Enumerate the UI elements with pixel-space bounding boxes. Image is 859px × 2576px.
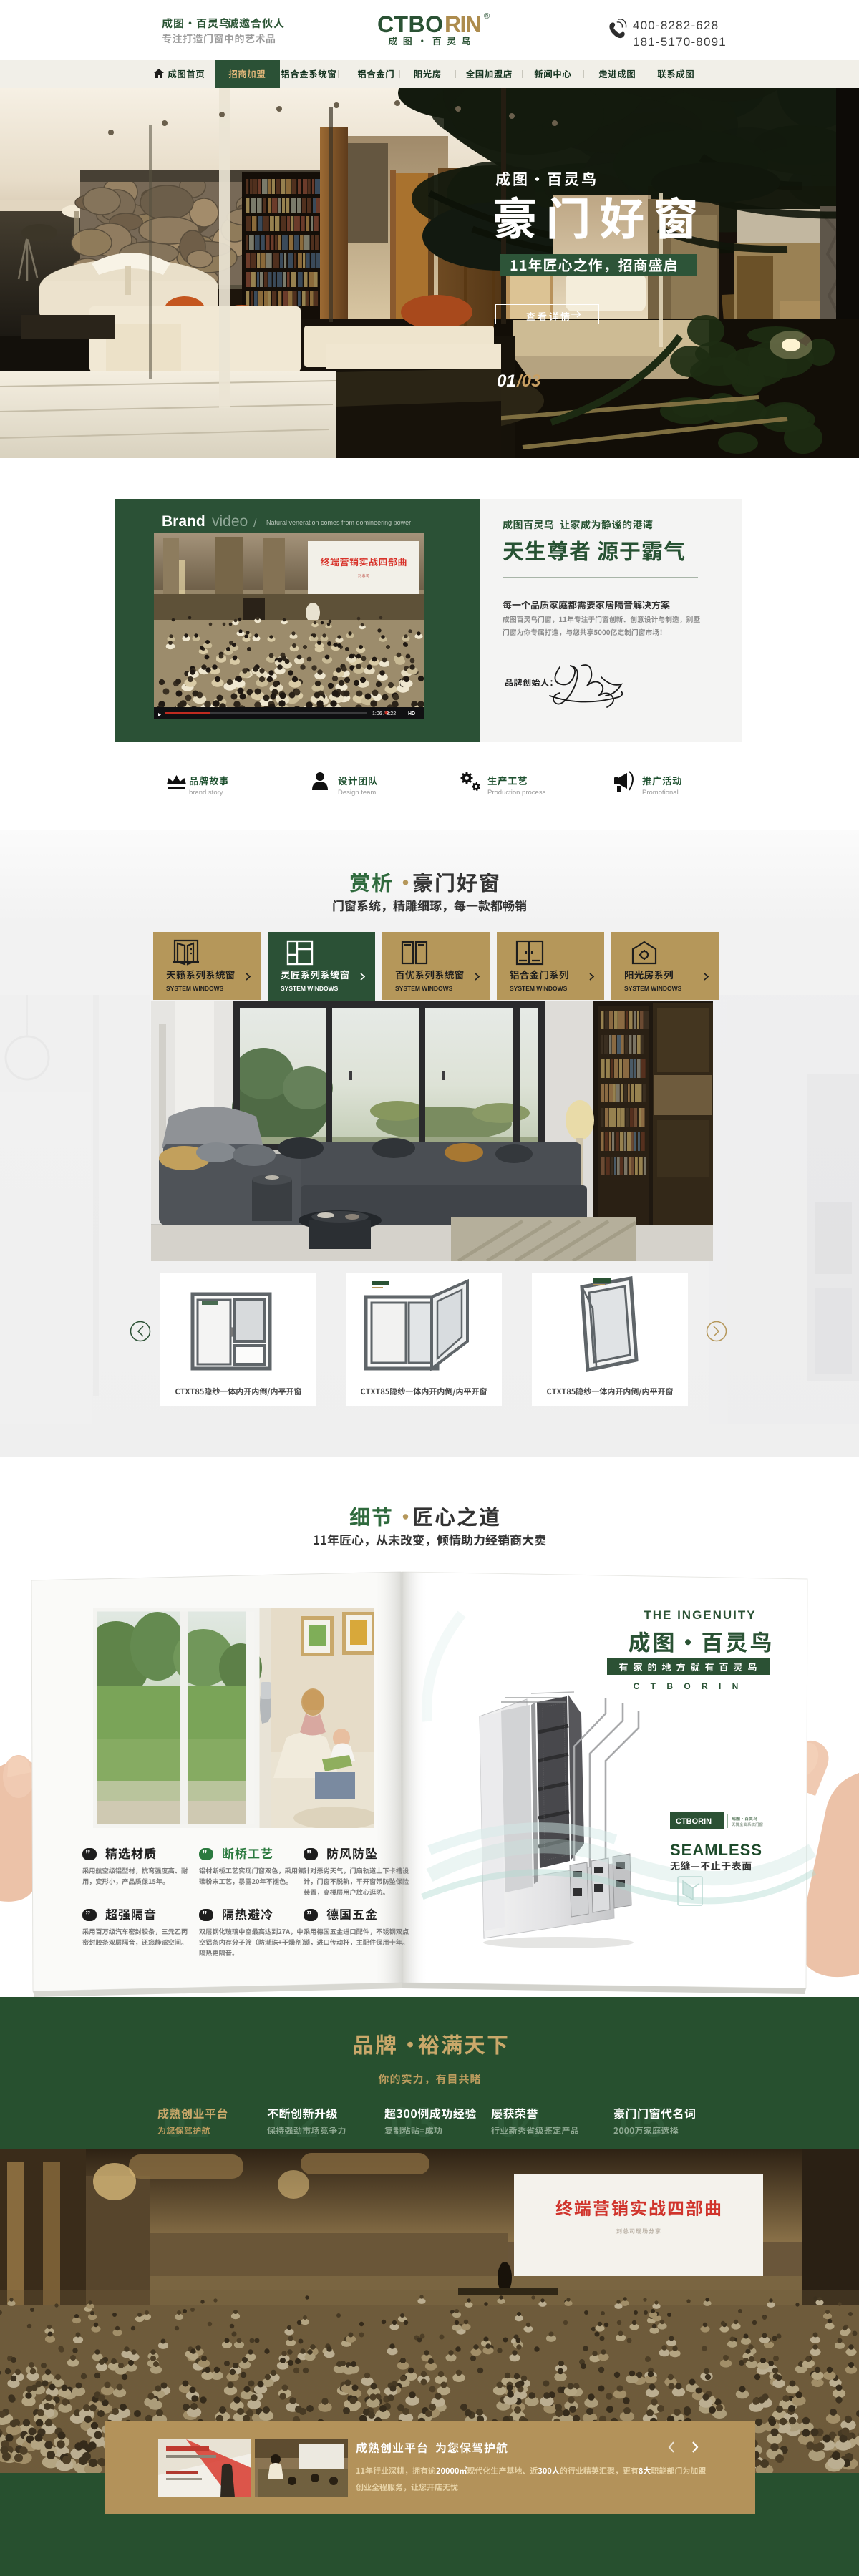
svg-text:video: video bbox=[212, 513, 248, 530]
svg-text:01: 01 bbox=[163, 2099, 210, 2146]
svg-text:Promotional: Promotional bbox=[642, 789, 679, 797]
svg-text:CTBO: CTBO bbox=[377, 11, 443, 37]
svg-text:®: ® bbox=[484, 12, 490, 21]
svg-text:CTBORIN: CTBORIN bbox=[676, 1817, 712, 1826]
svg-text:”: ” bbox=[202, 1909, 208, 1921]
svg-text:181-5170-8091: 181-5170-8091 bbox=[633, 35, 727, 49]
svg-text:SYSTEM WINDOWS: SYSTEM WINDOWS bbox=[281, 985, 339, 992]
svg-text:”: ” bbox=[202, 1848, 208, 1860]
svg-text:”: ” bbox=[306, 1909, 312, 1921]
svg-text:brand story: brand story bbox=[189, 789, 223, 797]
svg-text:C T B O R I N: C T B O R I N bbox=[634, 1681, 743, 1691]
svg-text:02: 02 bbox=[273, 2099, 319, 2146]
svg-text:400-8282-628: 400-8282-628 bbox=[633, 19, 719, 32]
svg-text:SYSTEM WINDOWS: SYSTEM WINDOWS bbox=[510, 985, 568, 992]
svg-text:”: ” bbox=[306, 1848, 312, 1860]
svg-text:Natural veneration comes from: Natural veneration comes from domineerin… bbox=[266, 519, 411, 526]
svg-text:03: 03 bbox=[390, 2099, 437, 2146]
svg-text:05: 05 bbox=[619, 2099, 666, 2146]
svg-text:Design team: Design team bbox=[338, 789, 376, 797]
svg-text:1:06 / 3:22: 1:06 / 3:22 bbox=[372, 711, 396, 716]
svg-text:SYSTEM WINDOWS: SYSTEM WINDOWS bbox=[624, 985, 682, 992]
svg-text:SYSTEM WINDOWS: SYSTEM WINDOWS bbox=[395, 985, 453, 992]
svg-text:Production process: Production process bbox=[487, 789, 546, 797]
svg-text:RIN: RIN bbox=[445, 11, 482, 37]
svg-text:”: ” bbox=[85, 1848, 91, 1860]
svg-text:THE INGENUITY: THE INGENUITY bbox=[644, 1608, 756, 1622]
svg-text:/: / bbox=[253, 517, 257, 530]
svg-text:Brand: Brand bbox=[162, 513, 205, 530]
svg-text:SEAMLESS: SEAMLESS bbox=[670, 1841, 762, 1859]
svg-text:04: 04 bbox=[497, 2099, 543, 2146]
svg-text:HD: HD bbox=[408, 711, 415, 716]
svg-text:SYSTEM WINDOWS: SYSTEM WINDOWS bbox=[166, 985, 224, 992]
svg-text:/03: /03 bbox=[516, 371, 541, 391]
svg-text:”: ” bbox=[85, 1909, 91, 1921]
svg-text:01: 01 bbox=[497, 371, 516, 391]
